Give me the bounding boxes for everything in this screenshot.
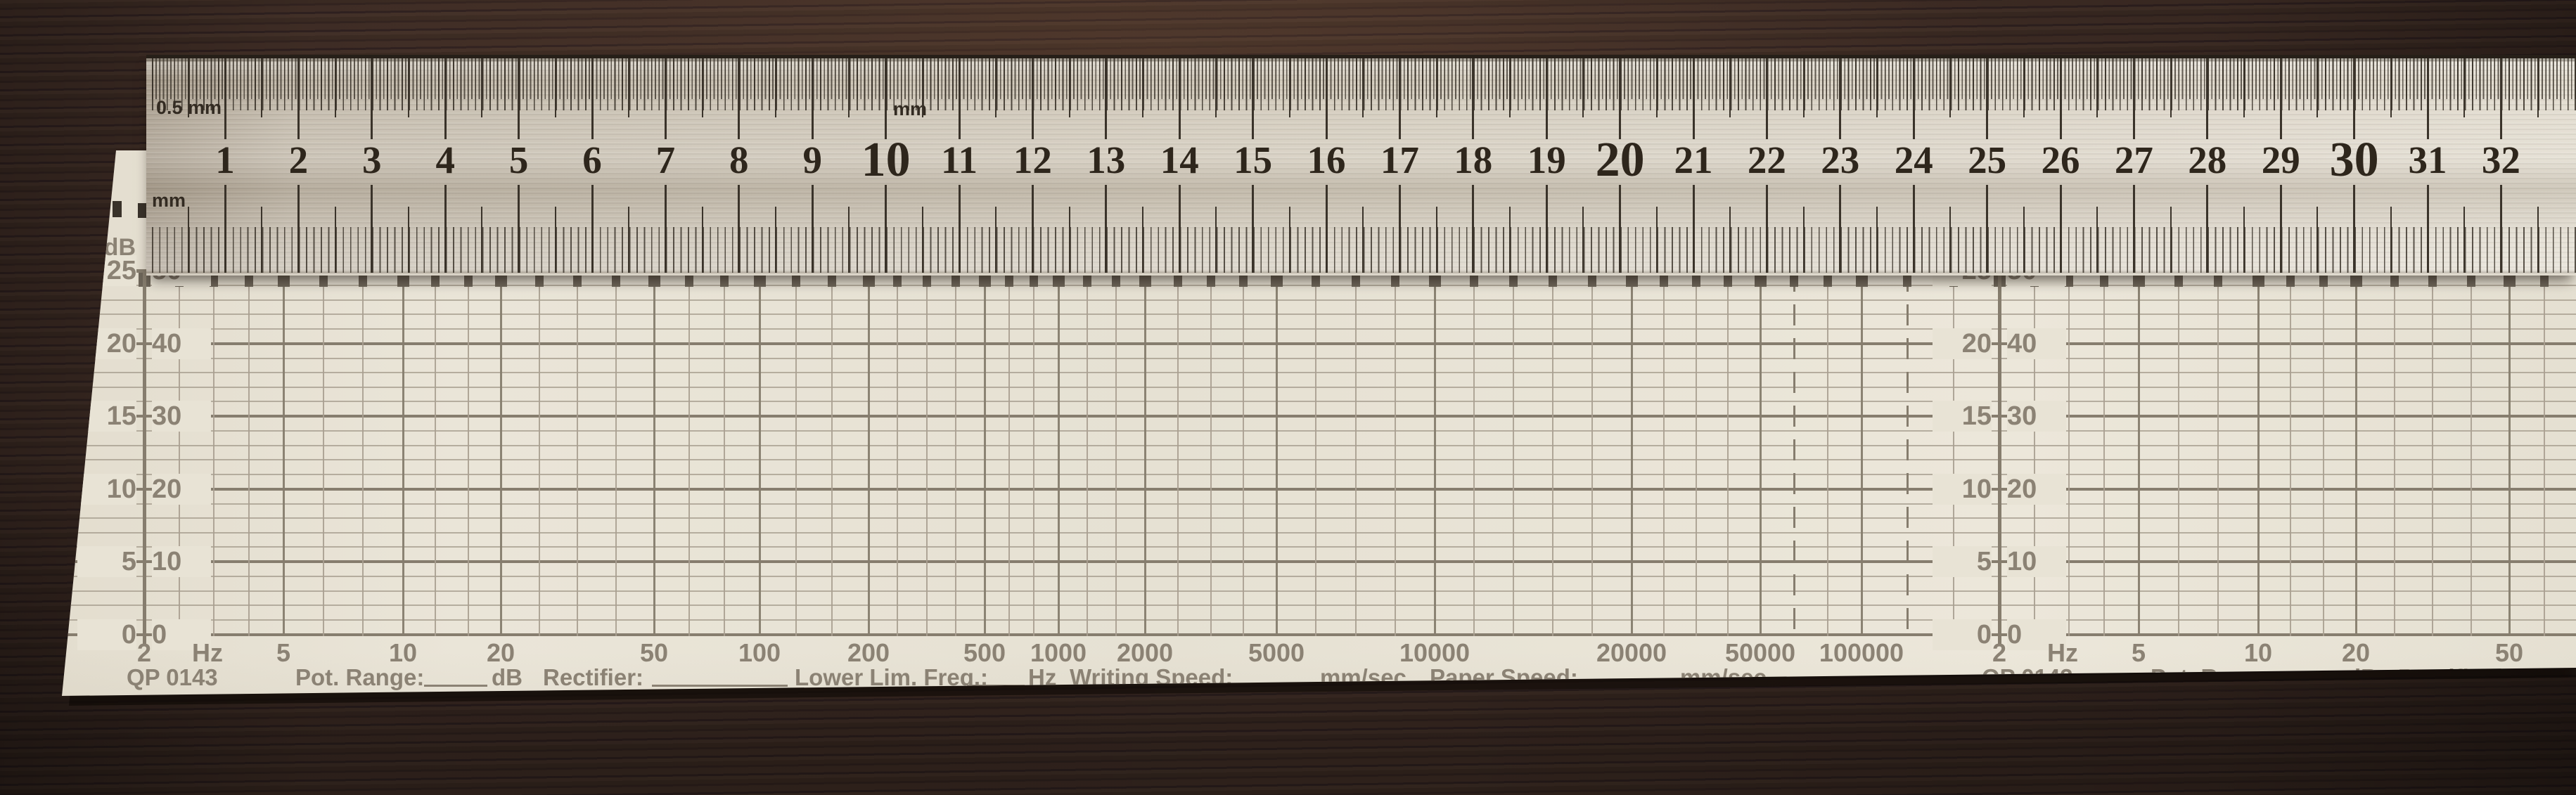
- grid-hline-minor: [59, 532, 2576, 534]
- grid-vline-minor: [323, 271, 324, 636]
- cm-tick: [1252, 58, 1254, 139]
- cm-tick: [1179, 58, 1181, 139]
- grid-vline-minor: [1033, 271, 1034, 636]
- grid-vline-minor: [248, 271, 250, 636]
- grid-vline-minor: [2178, 271, 2179, 636]
- ruler-number: 23: [1798, 137, 1883, 183]
- cm-tick: [1986, 185, 1988, 273]
- freq-label: 5000: [1227, 640, 1326, 666]
- freq-unit-label: Hz: [2013, 640, 2112, 666]
- grid-vline-minor: [1395, 271, 1396, 636]
- db-axis-header: dB: [72, 235, 136, 260]
- cm-tick: [518, 185, 520, 273]
- cm-tick: [371, 185, 373, 273]
- ruler-bottom-mm-ticks: [152, 227, 2576, 273]
- cm-tick: [444, 185, 447, 273]
- grid-vline-major: [984, 271, 986, 636]
- grid-vline-minor: [2323, 271, 2324, 636]
- grid-vline-major: [1760, 271, 1762, 636]
- grid-vline-minor: [179, 271, 180, 636]
- freq-unit-label: Hz: [158, 640, 257, 666]
- grid-hline-minor: [59, 517, 2576, 519]
- grid-vline-minor: [724, 271, 725, 636]
- half-cm-tick: [2390, 58, 2392, 117]
- cm-tick: [1546, 185, 1548, 273]
- form-underline: [424, 685, 487, 687]
- db-row-label-right: 40: [2007, 328, 2066, 359]
- cm-tick: [1839, 185, 1841, 273]
- cm-tick: [2206, 185, 2208, 273]
- grid-vline-minor: [688, 271, 690, 636]
- cm-tick: [2133, 58, 2135, 139]
- half-cm-tick: [2463, 58, 2465, 117]
- cm-tick: [371, 58, 373, 139]
- grid-vline-minor: [2103, 271, 2105, 636]
- half-cm-tick: [555, 207, 556, 273]
- db-row-label-right: 30: [2007, 401, 2066, 432]
- cm-tick: [665, 58, 667, 139]
- ruler-number: 3: [330, 137, 414, 183]
- half-cm-tick: [1142, 207, 1143, 273]
- half-cm-tick: [188, 207, 189, 273]
- half-cm-tick: [1215, 207, 1217, 273]
- ruler-number: 18: [1431, 137, 1516, 183]
- half-cm-tick: [1069, 58, 1070, 117]
- grid-vline-minor: [897, 271, 898, 636]
- grid-vline-minor: [1315, 271, 1316, 636]
- cm-tick: [1326, 185, 1328, 273]
- ruler-number: 31: [2385, 137, 2470, 183]
- half-cm-tick: [1803, 207, 1805, 273]
- grid-hline-minor: [59, 503, 2576, 505]
- freq-label: 200: [819, 640, 918, 666]
- db-row-label-right: 10: [2007, 546, 2066, 577]
- cm-tick: [2500, 185, 2502, 273]
- ruler-number: 30: [2312, 137, 2397, 183]
- cm-tick: [1839, 58, 1841, 139]
- ruler-number: 5: [477, 137, 561, 183]
- half-cm-tick: [2023, 207, 2025, 273]
- cm-tick: [2280, 185, 2282, 273]
- grid-vline-minor: [2432, 271, 2433, 636]
- cm-tick: [224, 185, 226, 273]
- ruler-number: 8: [697, 137, 781, 183]
- grid-vline-major: [1631, 271, 1633, 636]
- grid-vline-minor: [1827, 271, 1828, 636]
- ruler-top-mm-ticks: [152, 58, 2576, 110]
- grid-vline-minor: [213, 271, 214, 636]
- ruler-number: 21: [1651, 137, 1736, 183]
- ruler-number: 4: [403, 137, 487, 183]
- freq-label: 100000: [1812, 640, 1911, 666]
- grid-vline-minor: [539, 271, 540, 636]
- cm-tick: [2427, 58, 2429, 139]
- half-cm-tick: [702, 207, 703, 273]
- grid-hline-major: [59, 560, 2576, 563]
- grid-vline-major: [283, 271, 285, 636]
- freq-label: 2000: [1096, 640, 1194, 666]
- grid-vline-minor: [2544, 271, 2545, 636]
- ruler-number: 25: [1945, 137, 2030, 183]
- ruler-number: 2: [256, 137, 340, 183]
- ruler-number: 11: [917, 137, 1001, 183]
- grid-vline-major: [2508, 271, 2511, 636]
- grid-vline-minor: [435, 271, 436, 636]
- cm-tick: [1326, 58, 1328, 139]
- db-row-label-right: 10: [152, 546, 211, 577]
- grid-vline-major: [653, 271, 655, 636]
- half-cm-tick: [481, 207, 482, 273]
- grid-vline-major: [2355, 271, 2357, 636]
- grid-vline-minor: [2394, 271, 2395, 636]
- half-cm-tick: [1656, 207, 1658, 273]
- half-cm-tick: [1069, 207, 1070, 273]
- grid-vline-dashed: [1907, 271, 1909, 636]
- grid-hline-minor: [59, 459, 2576, 460]
- ruler-number: 28: [2165, 137, 2250, 183]
- grid-vline-minor: [1473, 271, 1475, 636]
- cm-tick: [812, 185, 814, 273]
- grid-vline-minor: [1663, 271, 1665, 636]
- ruler-number: 1: [183, 137, 267, 183]
- grid-vline-major: [1058, 271, 1060, 636]
- half-cm-tick: [261, 207, 262, 273]
- cm-tick: [1105, 58, 1107, 139]
- db-row-label-right: 20: [152, 474, 211, 505]
- cm-tick: [885, 185, 887, 273]
- half-cm-tick: [922, 207, 923, 273]
- db-row-label-left: 5: [77, 546, 136, 577]
- cm-tick: [2353, 185, 2355, 273]
- freq-label: 20000: [1582, 640, 1681, 666]
- cm-tick: [297, 185, 300, 273]
- half-cm-tick: [2317, 58, 2318, 117]
- cm-tick: [812, 58, 814, 139]
- grid-vline-major: [1276, 271, 1278, 636]
- cm-tick: [1399, 185, 1401, 273]
- cm-tick: [1032, 185, 1034, 273]
- half-cm-tick: [848, 58, 850, 117]
- freq-label: 50000: [1711, 640, 1809, 666]
- grid-hline-minor: [59, 328, 2576, 330]
- half-cm-tick: [702, 58, 703, 117]
- db-row-label-left: 10: [1933, 474, 1992, 505]
- cm-tick: [2206, 58, 2208, 139]
- half-cm-tick: [1582, 58, 1584, 117]
- ruler-number: 16: [1284, 137, 1369, 183]
- db-row-label-left: 20: [1933, 328, 1992, 359]
- grid-vline-minor: [2068, 271, 2070, 636]
- grid-vline-minor: [1552, 271, 1553, 636]
- cm-tick: [297, 58, 300, 139]
- half-cm-tick: [1656, 58, 1658, 117]
- freq-label: 20: [451, 640, 550, 666]
- cm-tick: [2133, 185, 2135, 273]
- cm-tick: [665, 185, 667, 273]
- grid-vline-minor: [1115, 271, 1117, 636]
- grid-vline-minor: [1591, 271, 1593, 636]
- cm-tick: [1766, 185, 1768, 273]
- grid-hline-minor: [59, 605, 2576, 606]
- ruler-bottom-edge-highlight: [146, 273, 2576, 276]
- db-row-label-left: 10: [77, 474, 136, 505]
- grid-vline-minor: [1953, 271, 1954, 636]
- half-cm-tick: [335, 207, 336, 273]
- form-underline: [652, 685, 788, 687]
- half-cm-tick: [1949, 58, 1951, 117]
- grid-vline-minor: [831, 271, 833, 636]
- cm-tick: [885, 58, 887, 139]
- grid-hline-major: [59, 342, 2576, 345]
- cm-tick: [1472, 58, 1474, 139]
- grid-vline-major: [1861, 271, 1863, 636]
- half-cm-tick: [2463, 207, 2465, 273]
- grid-vline-minor: [1513, 271, 1514, 636]
- cm-tick: [738, 58, 740, 139]
- half-cm-tick: [261, 58, 262, 117]
- grid-spine: [143, 269, 146, 644]
- cm-tick: [1619, 185, 1621, 273]
- cm-tick: [1252, 185, 1254, 273]
- half-cm-tick: [922, 58, 923, 117]
- half-cm-tick: [2537, 207, 2539, 273]
- cm-tick: [1105, 185, 1107, 273]
- half-cm-tick: [1949, 207, 1951, 273]
- half-cm-tick: [848, 207, 850, 273]
- freq-label: 20: [2307, 640, 2405, 666]
- half-cm-tick: [2023, 58, 2025, 117]
- grid-vline-major: [759, 271, 761, 636]
- grid-vline-major: [500, 271, 502, 636]
- photo-scene: 255020401530102051000dB25102050100200500…: [0, 0, 2576, 795]
- form-underline: [2507, 685, 2576, 687]
- grid-vline-minor: [955, 271, 956, 636]
- grid-vline-minor: [1355, 271, 1357, 636]
- freq-label: 1000: [1009, 640, 1108, 666]
- grid-vline-minor: [2034, 271, 2035, 636]
- half-cm-tick: [1436, 207, 1437, 273]
- half-cm-tick: [2390, 207, 2392, 273]
- half-cm-tick: [335, 58, 336, 117]
- cm-tick: [959, 185, 961, 273]
- steel-ruler: 0.5 mm mm mm 123456789101112131415161718…: [146, 55, 2576, 276]
- db-row-label-right: 40: [152, 328, 211, 359]
- grid-spine: [1998, 269, 2001, 644]
- half-cm-tick: [995, 58, 997, 117]
- half-cm-tick: [2243, 207, 2245, 273]
- grid-vline-major: [402, 271, 404, 636]
- ruler-number: 29: [2238, 137, 2323, 183]
- grid-vline-minor: [1696, 271, 1697, 636]
- cm-tick: [1619, 58, 1621, 139]
- cm-tick: [1032, 58, 1034, 139]
- half-cm-tick: [1509, 207, 1511, 273]
- grid-hline-minor: [59, 576, 2576, 577]
- registration-mark: [113, 201, 122, 217]
- grid-hline-minor: [59, 314, 2576, 315]
- ruler-number: 20: [1578, 137, 1662, 183]
- ruler-number: 22: [1724, 137, 1809, 183]
- half-cm-tick: [1362, 58, 1364, 117]
- grid-hline-minor: [59, 430, 2576, 432]
- cm-tick: [2280, 58, 2282, 139]
- db-row-label-left: 15: [77, 401, 136, 432]
- grid-vline-major: [2257, 271, 2260, 636]
- ruler-number: 32: [2459, 137, 2543, 183]
- ruler-number: 15: [1211, 137, 1295, 183]
- grid-hline-minor: [59, 474, 2576, 475]
- db-row-label-right: 20: [2007, 474, 2066, 505]
- grid-vline-major: [1434, 271, 1436, 636]
- half-cm-tick: [2096, 58, 2098, 117]
- grid-hline-minor: [59, 445, 2576, 446]
- half-cm-tick: [2170, 58, 2172, 117]
- cm-tick: [1472, 185, 1474, 273]
- grid-hline-minor: [59, 387, 2576, 388]
- cm-tick: [1399, 58, 1401, 139]
- grid-hline-minor: [59, 546, 2576, 548]
- form-underline: [2279, 685, 2343, 687]
- ruler-number: 26: [2018, 137, 2103, 183]
- cm-tick: [591, 58, 594, 139]
- grid-vline-minor: [577, 271, 578, 636]
- grid-vline-major: [868, 271, 870, 636]
- cm-tick: [1766, 58, 1768, 139]
- grid-vline-minor: [1210, 271, 1212, 636]
- grid-vline-minor: [615, 271, 617, 636]
- grid-hline-major: [59, 488, 2576, 491]
- cm-tick: [1913, 185, 1915, 273]
- half-cm-tick: [1362, 207, 1364, 273]
- cm-tick: [738, 185, 740, 273]
- grid-vline-major: [2138, 271, 2140, 636]
- freq-label: 50: [605, 640, 703, 666]
- ruler-number: 12: [990, 137, 1075, 183]
- half-cm-tick: [408, 207, 409, 273]
- grid-vline-minor: [2290, 271, 2291, 636]
- half-cm-tick: [1215, 58, 1217, 117]
- grid-vline-minor: [1243, 271, 1244, 636]
- ruler-number: 17: [1357, 137, 1442, 183]
- cm-tick: [959, 58, 961, 139]
- cm-tick: [2060, 58, 2062, 139]
- cm-tick: [591, 185, 594, 273]
- half-cm-tick: [628, 58, 629, 117]
- freq-label: 10: [2209, 640, 2307, 666]
- cm-tick: [2353, 58, 2355, 139]
- half-cm-tick: [1289, 58, 1290, 117]
- half-cm-tick: [2170, 207, 2172, 273]
- cm-tick: [1693, 185, 1695, 273]
- grid-vline-minor: [795, 271, 797, 636]
- db-row-label-left: 20: [77, 328, 136, 359]
- grid-vline-minor: [2471, 271, 2472, 636]
- freq-label: 50: [2460, 640, 2558, 666]
- form-unit-label: dB: [492, 665, 523, 690]
- scale-unit-label-bottom: mm: [152, 190, 186, 210]
- half-cm-tick: [1729, 58, 1731, 117]
- form-field-label: Rectifier:: [543, 665, 643, 690]
- grid-vline-minor: [1177, 271, 1179, 636]
- ruler-number: 9: [770, 137, 854, 183]
- grid-hline-minor: [59, 299, 2576, 301]
- cm-tick: [1546, 58, 1548, 139]
- grid-vline-minor: [2217, 271, 2219, 636]
- half-cm-tick: [1582, 207, 1584, 273]
- db-row-label-left: 15: [1933, 401, 1992, 432]
- half-cm-tick: [188, 58, 189, 117]
- half-cm-tick: [1289, 207, 1290, 273]
- grid-hline-major: [59, 633, 2576, 636]
- half-cm-tick: [775, 58, 776, 117]
- cm-tick: [1986, 58, 1988, 139]
- cm-tick: [1913, 58, 1915, 139]
- half-cm-tick: [1142, 58, 1143, 117]
- cm-tick: [2500, 58, 2502, 139]
- grid-vline-minor: [1087, 271, 1088, 636]
- ruler-number: 19: [1504, 137, 1589, 183]
- half-cm-tick: [1509, 58, 1511, 117]
- half-cm-tick: [1436, 58, 1437, 117]
- db-row-label-right: 30: [152, 401, 211, 432]
- db-row-label-left: 5: [1933, 546, 1992, 577]
- cm-tick: [2060, 185, 2062, 273]
- cm-tick: [2427, 185, 2429, 273]
- grid-hline-minor: [59, 372, 2576, 373]
- half-cm-tick: [628, 207, 629, 273]
- ruler-number: 13: [1064, 137, 1148, 183]
- half-cm-tick: [775, 207, 776, 273]
- grid-vline-minor: [362, 271, 364, 636]
- chart-model-label: QP 0143: [127, 665, 218, 690]
- grid-vline-minor: [1008, 271, 1010, 636]
- grid-vline-major: [1144, 271, 1146, 636]
- half-cm-tick: [2096, 207, 2098, 273]
- grid-hline-minor: [59, 401, 2576, 402]
- grid-vline-minor: [1727, 271, 1729, 636]
- cm-tick: [1179, 185, 1181, 273]
- grid-hline-minor: [59, 358, 2576, 359]
- cm-tick: [1693, 58, 1695, 139]
- ruler-number: 27: [2091, 137, 2176, 183]
- cm-tick: [518, 58, 520, 139]
- half-cm-tick: [1803, 58, 1805, 117]
- half-cm-tick: [1876, 207, 1878, 273]
- form-field-label: Pot. Range:: [295, 665, 424, 690]
- freq-label: 10: [354, 640, 452, 666]
- half-cm-tick: [995, 207, 997, 273]
- half-cm-tick: [408, 58, 409, 117]
- half-cm-tick: [2317, 207, 2318, 273]
- half-cm-tick: [1729, 207, 1731, 273]
- grid-hline-minor: [59, 590, 2576, 592]
- ruler-number: 10: [844, 137, 928, 183]
- half-cm-tick: [2537, 58, 2539, 117]
- grid-hline-major: [59, 415, 2576, 418]
- half-cm-tick: [1876, 58, 1878, 117]
- grid-vline-minor: [926, 271, 928, 636]
- ruler-number: 14: [1137, 137, 1222, 183]
- grid-vline-minor: [468, 271, 469, 636]
- ruler-number: 24: [1871, 137, 1956, 183]
- grid-vline-dashed: [1793, 271, 1795, 636]
- grid-hline-minor: [59, 619, 2576, 621]
- ruler-number: 7: [623, 137, 707, 183]
- half-cm-tick: [481, 58, 482, 117]
- cm-tick: [224, 58, 226, 139]
- half-cm-tick: [2243, 58, 2245, 117]
- ruler-number: 6: [550, 137, 634, 183]
